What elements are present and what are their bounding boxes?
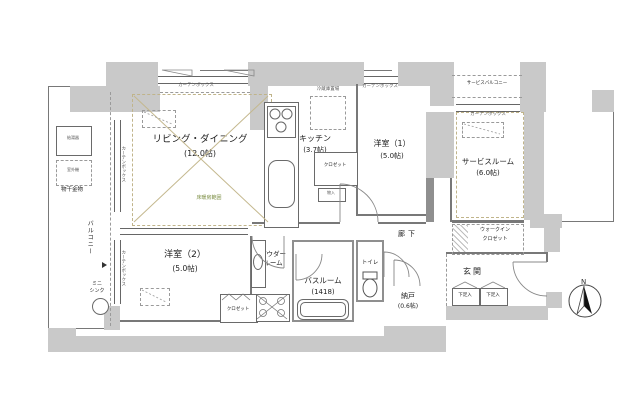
wall-storage-bottom <box>384 326 446 352</box>
wall-topright-pillar <box>592 90 614 112</box>
stove-icon <box>267 106 296 138</box>
bedroom2-label: 洋室（2） <box>150 251 220 260</box>
wall-svcbalcony-left <box>430 86 454 106</box>
fridge-label: 冷蔵庫置場 <box>304 88 352 93</box>
wall-bed1-service <box>426 112 454 178</box>
toilet-label: トイレ <box>356 261 384 267</box>
wall-bed1-left-pillar <box>336 62 364 86</box>
bedroom1-closet-label: クロゼット <box>315 164 355 169</box>
bedroom1-closet <box>314 152 358 186</box>
wall-serviceroom-east <box>524 112 544 220</box>
wic-label2: クロゼット <box>470 237 520 242</box>
bedroom1-label: 洋室（1） <box>358 140 426 148</box>
wall-topmid-pillar <box>248 62 300 86</box>
wall-entrance-bottom <box>446 306 548 320</box>
bedroom1-curtain-label: カーテンボックス <box>352 85 408 90</box>
bedroom1-size: (5.0帖) <box>360 153 424 160</box>
bathroom-size: (1418) <box>294 289 352 296</box>
wall-hall-service <box>426 178 434 222</box>
living-bedroom2-partition <box>120 228 248 235</box>
outdoor-unit-label: 室外機 <box>58 168 88 172</box>
wic-hatch <box>453 225 468 252</box>
storage-label: 納戸 <box>388 293 428 300</box>
storage-door-arc <box>394 260 420 286</box>
compass-icon: N <box>569 278 601 317</box>
bathtub-inner <box>300 302 346 317</box>
entrance-door-arc <box>513 262 547 296</box>
svcbalcony-rail-top <box>452 75 522 76</box>
right-outer-line-h <box>562 221 614 222</box>
shoe-cabinet-1-label: 下足入 <box>452 294 478 299</box>
living-curtain-line <box>160 92 250 93</box>
wall-corridor-north-b <box>378 222 426 224</box>
water-heater-box <box>56 126 92 156</box>
wall-wic-step2 <box>544 228 560 252</box>
wall-bed1-south <box>356 214 426 216</box>
entrance-label: 玄関 <box>456 268 490 276</box>
sink-icon <box>268 160 295 208</box>
hallway-label: 廊下 <box>388 231 428 238</box>
wic-label1: ウォークイン <box>468 228 522 233</box>
wall-bottom-band <box>76 336 386 352</box>
bedroom2-size: (5.0帖) <box>152 265 218 273</box>
serviceroom-size: (6.0帖) <box>452 170 524 177</box>
bathroom-label: バスルーム <box>294 277 352 285</box>
balcony-label: バルコニー <box>86 220 92 255</box>
wall-svcbalcony-right <box>520 62 546 112</box>
kitchen-label: キッチン <box>288 135 342 143</box>
wall-bottomleft-step <box>48 328 76 352</box>
outdoor-unit-box <box>56 160 92 186</box>
serviceroom-window <box>456 104 520 112</box>
wall-serviceroom-west <box>450 178 452 222</box>
compass-n-label: N <box>581 278 586 286</box>
living-curtain-label-v: カーテンボックス <box>120 146 125 182</box>
living-label: リビング・ダイニング <box>140 135 260 145</box>
living-ceiling-box <box>142 110 176 128</box>
vanity-basin-icon <box>253 254 263 270</box>
mini-sink-label2: シンク <box>82 289 112 294</box>
wall-wic-step <box>530 214 562 228</box>
small-storage-label: 物入 <box>319 191 343 195</box>
balcony-outer-wall <box>48 86 49 330</box>
fridge-space-box <box>310 96 346 130</box>
wall-kitchen-top <box>298 62 338 86</box>
wall-serviceroom-south <box>452 220 524 223</box>
toilet-door-arc <box>384 252 409 277</box>
bedroom2-curtain-label-v: カーテンボックス <box>120 250 125 286</box>
serviceroom-curtain-label: カーテンボックス <box>460 113 516 118</box>
washer-icon <box>256 294 290 322</box>
drain-arrow-icon <box>102 262 107 268</box>
mini-sink-label1: ミニ <box>84 282 110 287</box>
bedroom1-window <box>364 76 398 84</box>
svcbalcony-label: サービスバルコニー <box>450 82 524 87</box>
water-heater-label: 給湯器 <box>58 136 88 140</box>
svcbalcony-rail-bottom <box>452 97 522 98</box>
entrance-step-line <box>446 254 447 306</box>
storage-size: (0.6帖) <box>386 304 430 310</box>
toilet-walls <box>356 240 384 302</box>
bedroom2-furniture-box <box>140 288 170 306</box>
bedroom2-closet-label: クロゼット <box>220 308 256 313</box>
mini-sink-icon <box>92 298 109 315</box>
wall-entrance-step <box>546 292 562 308</box>
wall-bed1-right-pillar <box>398 62 454 86</box>
living-curtain-label: カーテンボックス <box>166 84 226 89</box>
laundry-hardware-label: 物干金物 <box>50 188 94 194</box>
floor-plan: バルコニー 給湯器 室外機 物干金物 ミニ シンク カーテンボックス カーテンボ… <box>0 0 640 400</box>
wall-topleft-pillar <box>106 62 158 88</box>
floor-heating-label: 床暖房範囲 <box>186 196 232 201</box>
shoe-cabinet-2-label: 下足入 <box>480 294 506 299</box>
serviceroom-small-box <box>462 122 504 138</box>
serviceroom-label: サービスルーム <box>450 158 526 166</box>
living-size: (12.0帖) <box>160 150 240 158</box>
wall-bed1-west <box>356 84 358 216</box>
balcony-top-line <box>48 86 72 87</box>
